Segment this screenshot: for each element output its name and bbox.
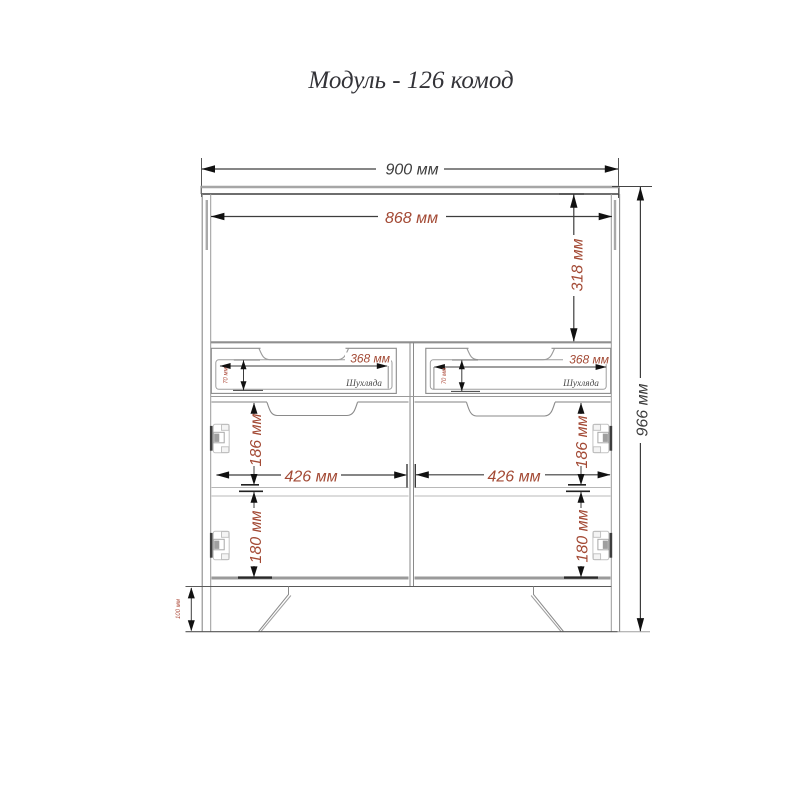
svg-text:180 мм: 180 мм [248, 510, 265, 563]
svg-text:70 мм: 70 мм [224, 367, 230, 384]
svg-text:Шухляда: Шухляда [345, 378, 382, 389]
svg-text:Модуль - 126 комод: Модуль - 126 комод [307, 67, 513, 94]
svg-text:180 мм: 180 мм [575, 509, 592, 562]
svg-text:426 мм: 426 мм [284, 468, 337, 485]
svg-text:Шухляда: Шухляда [562, 378, 599, 389]
svg-text:186 мм: 186 мм [574, 415, 591, 468]
svg-text:70 мм: 70 мм [442, 368, 448, 385]
svg-text:368 мм: 368 мм [569, 352, 609, 366]
svg-text:966 мм: 966 мм [635, 383, 652, 436]
svg-text:318 мм: 318 мм [570, 238, 587, 291]
svg-text:900 мм: 900 мм [385, 162, 438, 179]
svg-text:186 мм: 186 мм [248, 413, 265, 466]
svg-text:426 мм: 426 мм [487, 468, 540, 485]
svg-text:100 мм: 100 мм [176, 599, 182, 619]
svg-text:368 мм: 368 мм [350, 351, 390, 365]
svg-text:868 мм: 868 мм [385, 210, 438, 227]
